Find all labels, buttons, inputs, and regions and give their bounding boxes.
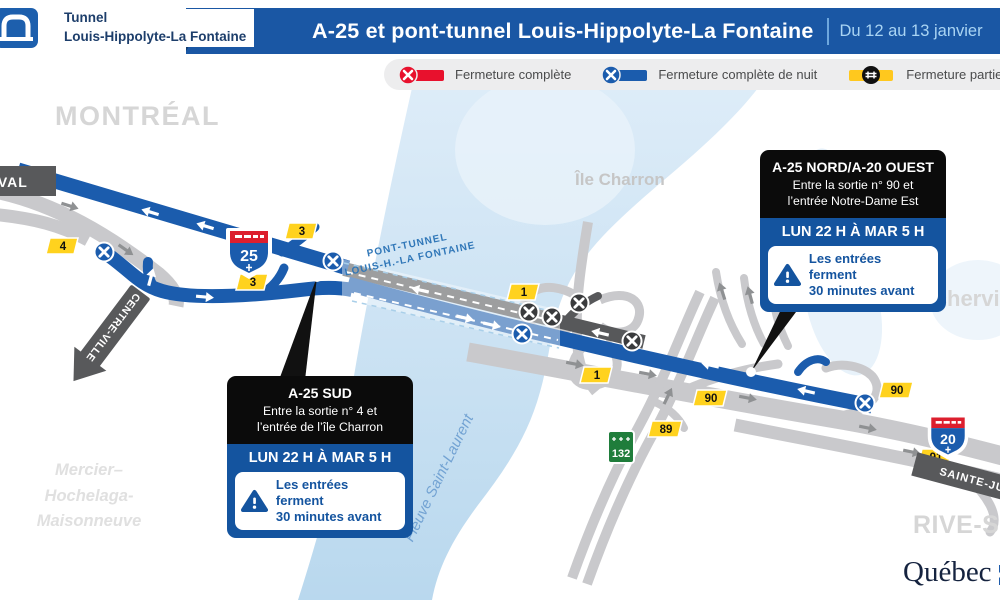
tunnel-logo-block: Tunnel Louis-Hippolyte-La Fontaine bbox=[0, 0, 186, 55]
exit-marker: 90 bbox=[693, 390, 727, 406]
legend-bar: Fermeture complète Fermeture complète de… bbox=[384, 59, 1000, 90]
label-montreal: MONTRÉAL bbox=[55, 101, 220, 132]
warning-triangle-icon bbox=[774, 263, 801, 287]
page-title: A-25 et pont-tunnel Louis-Hippolyte-La F… bbox=[312, 19, 814, 44]
warning-triangle-icon bbox=[241, 489, 268, 513]
borough-line3: Maisonneuve bbox=[14, 509, 164, 535]
callout-a25-sud: A-25 SUD Entre la sortie n° 4 et l’entré… bbox=[227, 376, 413, 538]
svg-text:1: 1 bbox=[594, 370, 601, 382]
legend-item-night-closure: Fermeture complète de nuit bbox=[601, 65, 817, 85]
ramp-entrance-hook bbox=[798, 359, 826, 372]
quebec-wordmark: Québec bbox=[903, 556, 992, 589]
svg-text:4: 4 bbox=[60, 241, 67, 253]
exit-marker: 90 bbox=[879, 382, 913, 398]
ramp-fan-1 bbox=[716, 272, 742, 344]
quebec-logo: Québec bbox=[903, 556, 1000, 589]
label-borough: Mercier– Hochelaga- Maisonneuve bbox=[14, 458, 164, 535]
callout-header: A-25 NORD/A-20 OUEST Entre la sortie n° … bbox=[760, 150, 946, 218]
tunnel-logo-icon bbox=[0, 8, 38, 53]
callout-header: A-25 SUD Entre la sortie n° 4 et l’entré… bbox=[227, 376, 413, 444]
svg-text:LAVAL: LAVAL bbox=[0, 174, 28, 190]
label-ile-charron: Île Charron bbox=[575, 170, 665, 190]
label-rive-sud: RIVE-SUD bbox=[913, 511, 1000, 540]
tunnel-logo-text: Tunnel Louis-Hippolyte-La Fontaine bbox=[64, 9, 254, 47]
svg-text:90: 90 bbox=[705, 393, 718, 405]
svg-text:CENTRE-VILLE: CENTRE-VILLE bbox=[83, 291, 142, 364]
callout-desc: Entre la sortie n° 4 et l’entrée de l’îl… bbox=[232, 404, 408, 436]
road-a20-corridor bbox=[468, 352, 1000, 458]
hash-circle-yellow-icon bbox=[847, 65, 895, 85]
warning-text: Les entrées ferment 30 minutes avant bbox=[809, 251, 932, 300]
full-closure-x-icon bbox=[570, 294, 589, 313]
svg-text:89: 89 bbox=[660, 424, 673, 436]
callout-warning: Les entrées ferment 30 minutes avant bbox=[235, 472, 405, 531]
legend-item-partial-closure: Fermeture partielle (# voie ouverte) bbox=[847, 65, 1000, 85]
svg-text:1: 1 bbox=[521, 287, 528, 299]
callout-anchor-dot bbox=[312, 272, 322, 282]
callout-time: LUN 22 H À MAR 5 H bbox=[227, 444, 413, 472]
svg-text:20: 20 bbox=[940, 431, 956, 447]
legend-label: Fermeture complète de nuit bbox=[658, 67, 817, 82]
borough-line1: Mercier– bbox=[14, 458, 164, 484]
svg-text:3: 3 bbox=[299, 226, 305, 238]
full-closure-x-icon bbox=[623, 332, 642, 351]
logo-line2: Louis-Hippolyte-La Fontaine bbox=[64, 28, 246, 47]
night-closure-x-icon bbox=[95, 243, 114, 262]
a25-shield: 25 bbox=[226, 228, 272, 279]
night-closure-x-icon bbox=[513, 325, 532, 344]
laval-sign: LAVAL bbox=[0, 166, 56, 196]
full-closure-x-icon bbox=[543, 308, 562, 327]
title-separator bbox=[827, 18, 829, 45]
roadwork-map-page: 4 3 3 1 1 90 90 89 91 25 20 bbox=[0, 0, 1000, 600]
svg-text:132: 132 bbox=[612, 448, 630, 460]
x-circle-blue-icon bbox=[601, 65, 647, 85]
route-132-shield: 132 bbox=[608, 431, 634, 463]
exit-marker: 4 bbox=[46, 238, 78, 254]
water-patch bbox=[455, 75, 635, 225]
warning-text: Les entrées ferment 30 minutes avant bbox=[276, 477, 399, 526]
legend-label: Fermeture complète bbox=[455, 67, 571, 82]
date-range: Du 12 au 13 janvier bbox=[840, 22, 983, 41]
callout-body: LUN 22 H À MAR 5 H Les entrées ferment 3… bbox=[227, 444, 413, 539]
x-circle-red-icon bbox=[398, 65, 444, 85]
callout-desc: Entre la sortie n° 90 et l’entrée Notre-… bbox=[765, 178, 941, 210]
callout-a25-nord: A-25 NORD/A-20 OUEST Entre la sortie n° … bbox=[760, 150, 946, 312]
exit-marker: 89 bbox=[648, 421, 682, 437]
night-closure-x-icon bbox=[856, 394, 875, 413]
callout-title: A-25 SUD bbox=[232, 385, 408, 401]
logo-line1: Tunnel bbox=[64, 9, 246, 28]
callout-body: LUN 22 H À MAR 5 H Les entrées ferment 3… bbox=[760, 218, 946, 313]
legend-item-full-closure: Fermeture complète bbox=[398, 65, 571, 85]
svg-text:3: 3 bbox=[250, 277, 256, 289]
svg-text:25: 25 bbox=[240, 248, 258, 265]
legend-label: Fermeture partielle (# voie ouverte) bbox=[906, 67, 1000, 82]
callout-time: LUN 22 H À MAR 5 H bbox=[760, 218, 946, 246]
callout-warning: Les entrées ferment 30 minutes avant bbox=[768, 246, 938, 305]
centre-ville-sign: CENTRE-VILLE bbox=[58, 280, 157, 394]
exit-marker: 1 bbox=[580, 367, 612, 383]
night-closure-x-icon bbox=[324, 252, 343, 271]
exit-marker: 3 bbox=[285, 223, 317, 239]
title-bar: A-25 et pont-tunnel Louis-Hippolyte-La F… bbox=[186, 8, 1000, 54]
callout-anchor-dot bbox=[746, 367, 756, 377]
callout-title: A-25 NORD/A-20 OUEST bbox=[765, 159, 941, 175]
full-closure-x-icon bbox=[520, 303, 539, 322]
borough-line2: Hochelaga- bbox=[14, 484, 164, 510]
exit-marker: 1 bbox=[507, 284, 539, 300]
svg-text:90: 90 bbox=[891, 385, 904, 397]
